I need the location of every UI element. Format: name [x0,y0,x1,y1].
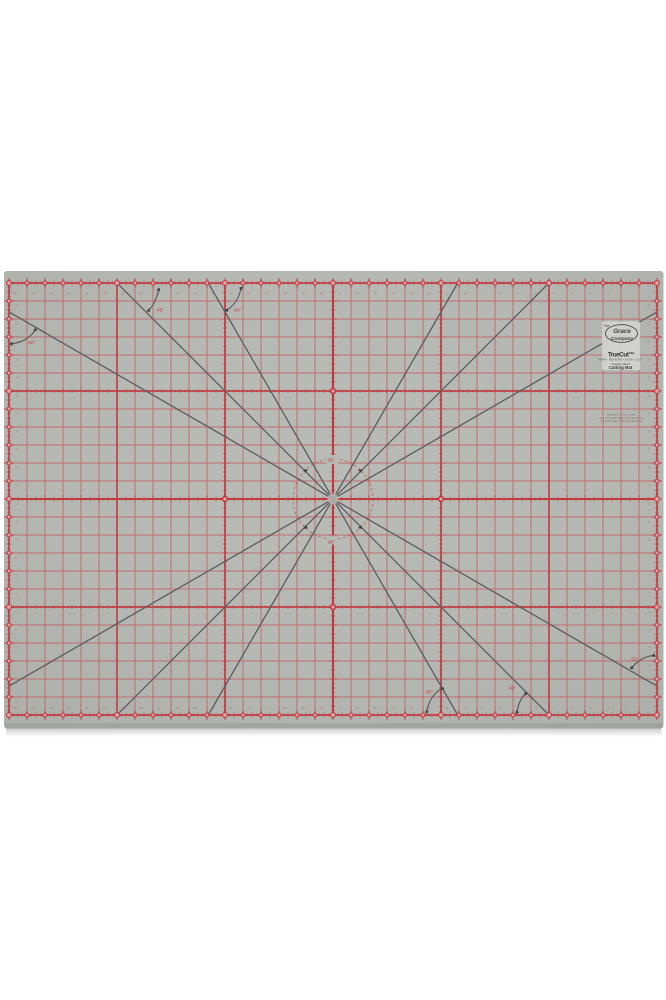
svg-text:90°: 90° [328,458,335,463]
svg-text:31: 31 [85,706,89,710]
svg-text:19: 19 [16,375,19,379]
svg-text:15: 15 [373,706,377,710]
svg-text:12: 12 [16,501,19,505]
svg-text:29: 29 [121,706,125,710]
svg-text:60°: 60° [426,690,433,696]
svg-text:45°: 45° [509,686,516,692]
svg-text:60°: 60° [631,657,638,663]
svg-text:12: 12 [648,501,651,505]
svg-text:24: 24 [211,292,215,296]
svg-text:20: 20 [648,357,651,361]
svg-text:12: 12 [427,292,431,296]
svg-text:28: 28 [139,292,143,296]
svg-text:10: 10 [16,537,19,541]
svg-text:the best use of the mat surfac: the best use of the mat surface [600,419,642,423]
svg-text:15: 15 [373,292,377,296]
svg-text:The: The [604,324,610,328]
svg-text:20: 20 [283,706,287,710]
svg-text:22: 22 [648,321,651,325]
svg-text:13: 13 [648,483,651,487]
svg-text:18: 18 [16,393,19,397]
svg-text:13: 13 [16,483,19,487]
svg-text:22: 22 [16,321,19,325]
svg-text:22: 22 [247,706,251,710]
svg-text:10: 10 [463,706,467,710]
svg-text:90°: 90° [328,540,335,545]
svg-text:32: 32 [67,292,71,296]
svg-text:21: 21 [648,339,651,343]
svg-text:60°: 60° [28,340,35,346]
svg-text:19: 19 [301,706,305,710]
svg-text:MARK • MEASURE • ALIGN • CUT: MARK • MEASURE • ALIGN • CUT [599,358,642,361]
svg-text:10: 10 [648,537,651,541]
svg-text:11: 11 [445,706,448,710]
svg-text:10: 10 [463,292,467,296]
svg-text:18: 18 [319,292,323,296]
svg-text:15: 15 [16,447,19,451]
svg-text:34: 34 [31,292,35,296]
svg-text:30: 30 [103,706,107,710]
svg-text:23: 23 [229,292,233,296]
svg-text:16: 16 [355,706,359,710]
svg-text:14: 14 [648,465,651,469]
svg-text:19: 19 [301,292,305,296]
svg-text:20: 20 [16,357,19,361]
svg-text:31: 31 [85,292,89,296]
svg-text:16: 16 [648,429,651,433]
svg-text:20: 20 [283,292,287,296]
svg-text:16: 16 [355,292,359,296]
svg-text:23: 23 [648,303,651,307]
svg-text:30: 30 [103,292,107,296]
svg-text:17: 17 [648,411,651,415]
svg-text:14: 14 [391,706,395,710]
svg-text:23: 23 [16,303,19,307]
svg-text:26: 26 [175,292,179,296]
svg-text:14: 14 [391,292,395,296]
svg-text:21: 21 [265,706,269,710]
svg-text:14: 14 [16,465,19,469]
svg-text:13: 13 [409,706,413,710]
svg-text:17: 17 [337,292,341,296]
svg-text:25: 25 [193,292,197,296]
svg-text:Grace: Grace [613,328,631,335]
svg-text:23: 23 [229,706,233,710]
svg-text:25: 25 [193,706,197,710]
svg-text:11: 11 [445,292,448,296]
svg-text:21: 21 [265,292,269,296]
svg-text:35: 35 [13,292,17,296]
svg-text:13: 13 [409,292,413,296]
svg-text:Company: Company [611,336,634,342]
svg-text:17: 17 [16,411,19,415]
svg-text:24: 24 [211,706,215,710]
svg-text:16: 16 [16,429,19,433]
svg-text:27: 27 [157,706,161,710]
svg-text:45°: 45° [157,308,164,314]
svg-text:35: 35 [13,706,17,710]
svg-text:29: 29 [121,292,125,296]
svg-text:32: 32 [67,706,71,710]
svg-text:33: 33 [49,706,53,710]
svg-text:60°: 60° [234,308,241,314]
svg-text:22: 22 [247,292,251,296]
svg-text:15: 15 [648,447,651,451]
svg-text:19: 19 [648,375,651,379]
svg-text:18: 18 [648,393,651,397]
svg-text:34: 34 [31,706,35,710]
svg-text:33: 33 [49,292,53,296]
svg-text:17: 17 [337,706,341,710]
svg-text:26: 26 [175,706,179,710]
svg-text:Cutting Mat: Cutting Mat [609,365,633,370]
svg-text:28: 28 [139,706,143,710]
svg-text:18: 18 [319,706,323,710]
